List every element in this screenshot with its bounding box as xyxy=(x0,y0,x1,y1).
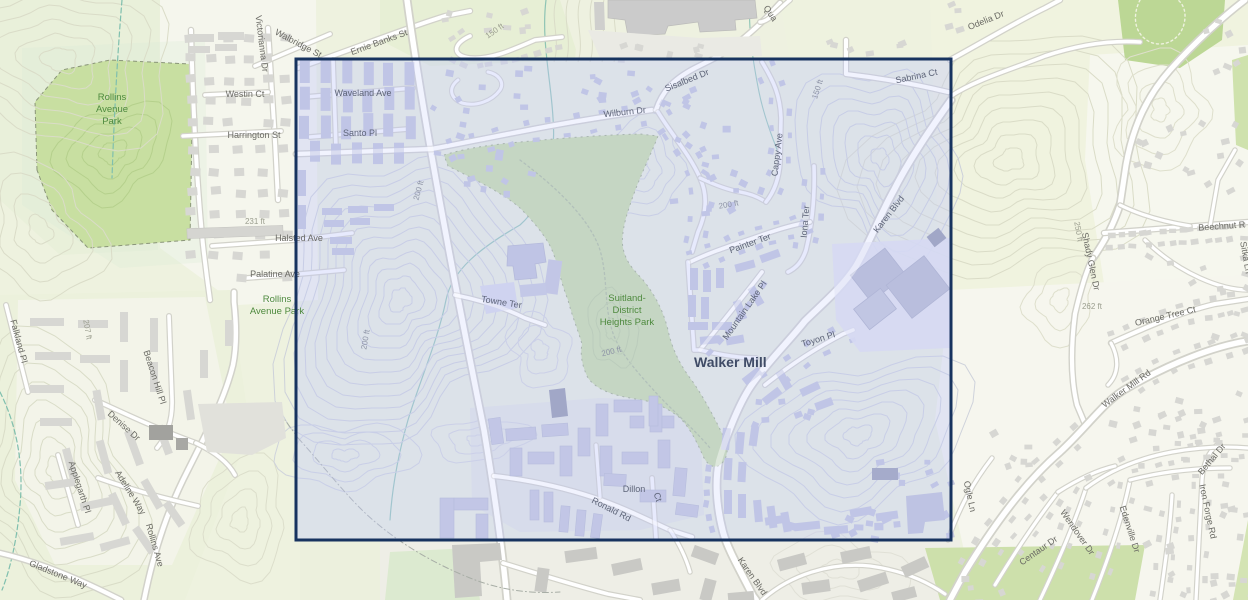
svg-text:Westin Ct: Westin Ct xyxy=(226,89,265,99)
svg-text:Heights Park: Heights Park xyxy=(600,317,655,328)
svg-text:231 ft: 231 ft xyxy=(245,217,266,226)
svg-text:Park: Park xyxy=(102,116,122,127)
svg-text:Palatine Ave: Palatine Ave xyxy=(250,269,300,279)
svg-text:262 ft: 262 ft xyxy=(1082,302,1103,311)
svg-text:Santo Pl: Santo Pl xyxy=(343,128,377,138)
svg-text:Rollins: Rollins xyxy=(263,294,292,305)
svg-text:Harrington St: Harrington St xyxy=(227,130,281,140)
svg-text:Walker Mill: Walker Mill xyxy=(694,354,767,370)
svg-text:Halsted Ave: Halsted Ave xyxy=(275,233,323,243)
svg-text:Suitland-: Suitland- xyxy=(608,293,646,304)
svg-text:Waveland Ave: Waveland Ave xyxy=(334,88,391,98)
svg-text:Rollins: Rollins xyxy=(98,92,127,103)
svg-text:District: District xyxy=(612,305,641,316)
svg-text:Dillon: Dillon xyxy=(623,484,646,494)
svg-text:Avenue: Avenue xyxy=(96,104,128,115)
